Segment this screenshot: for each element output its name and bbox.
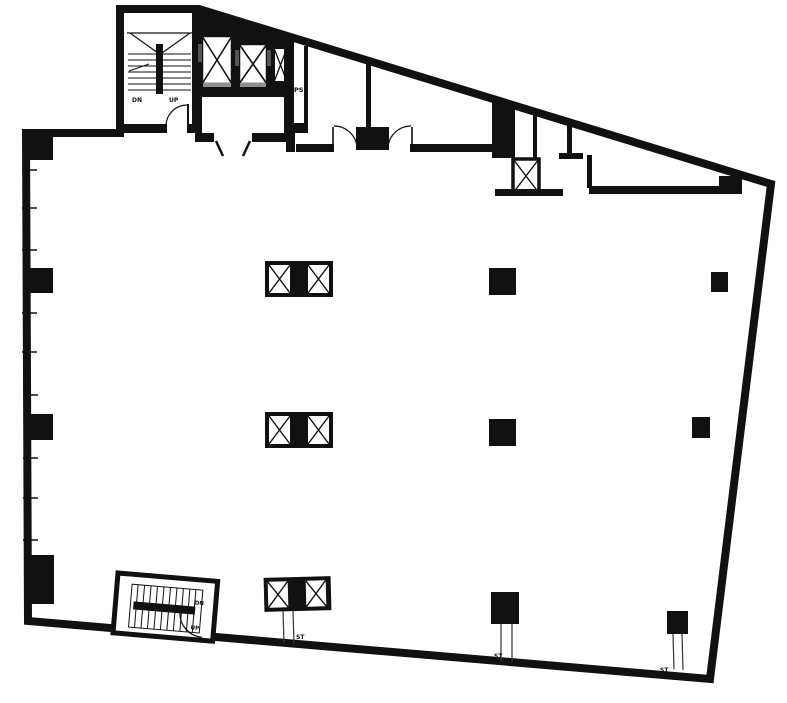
stair-top-up-label: UP	[169, 97, 179, 104]
stair-bottom-up-label: UP	[190, 625, 199, 632]
elevator-sill	[203, 83, 231, 87]
standpipe-label: ST	[296, 634, 305, 641]
column	[711, 272, 728, 292]
elevator-rail	[235, 50, 239, 66]
door-leaf	[243, 141, 250, 156]
column	[667, 611, 688, 634]
column	[27, 268, 53, 293]
door-arc	[334, 126, 357, 149]
service-rooms-right	[492, 100, 742, 196]
column	[27, 414, 53, 440]
elevator-rail	[198, 44, 202, 62]
door-center-post	[356, 127, 389, 150]
elevator-rail	[267, 50, 271, 66]
stair-bottom-dn-label: DN	[194, 601, 204, 608]
door-leaf	[216, 141, 223, 156]
door-arc	[166, 105, 187, 126]
shaft-cluster-row1	[265, 261, 333, 297]
room-divider-wall	[366, 62, 371, 130]
floor-plan-svg: DN UP P	[0, 0, 787, 703]
shaft-cluster-row3	[264, 576, 332, 612]
shaft-cluster-row2	[265, 412, 333, 448]
wall-block	[492, 100, 515, 158]
column	[27, 135, 53, 160]
corridor-wall	[589, 186, 739, 194]
column	[489, 268, 516, 295]
pipe-shaft: PS	[284, 38, 308, 152]
vestibule	[296, 62, 495, 152]
stairwell-top: DN UP	[123, 9, 202, 133]
column	[692, 417, 710, 438]
interior-columns	[489, 268, 728, 634]
elevator-sill	[240, 83, 266, 87]
column	[491, 592, 519, 624]
column	[489, 419, 516, 446]
standpipe-label: ST	[494, 653, 503, 660]
stair-center-rail	[156, 44, 163, 94]
stairwell-bottom: DN UP	[113, 573, 218, 641]
wall-end-column	[719, 176, 742, 194]
pipe-shaft-label: PS	[294, 86, 304, 94]
door-arc	[388, 126, 411, 149]
column	[27, 555, 54, 604]
stair-top-dn-label: DN	[132, 97, 142, 104]
standpipe-label: ST	[660, 667, 669, 674]
